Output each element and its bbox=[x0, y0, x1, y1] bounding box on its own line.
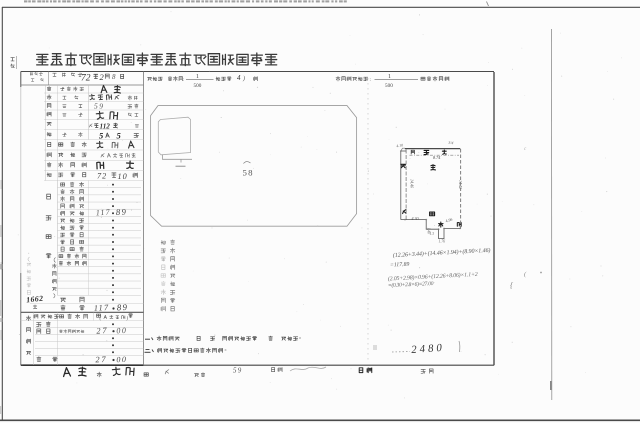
svg-text:500: 500 bbox=[194, 83, 202, 89]
svg-text:112: 112 bbox=[100, 122, 111, 130]
svg-text:72: 72 bbox=[81, 74, 91, 84]
svg-text:1.76: 1.76 bbox=[439, 240, 446, 244]
svg-text:4: 4 bbox=[237, 74, 241, 82]
svg-text:59: 59 bbox=[94, 101, 105, 110]
svg-text:4.96: 4.96 bbox=[445, 217, 453, 224]
svg-text:4.30: 4.30 bbox=[412, 216, 419, 221]
svg-text:00: 00 bbox=[116, 326, 127, 336]
svg-text:27: 27 bbox=[96, 326, 108, 336]
svg-text:=117.89: =117.89 bbox=[390, 262, 410, 269]
svg-text:14.46: 14.46 bbox=[410, 179, 415, 188]
svg-text:117: 117 bbox=[96, 207, 112, 217]
svg-text:): ) bbox=[242, 75, 245, 82]
svg-text:1: 1 bbox=[196, 74, 199, 80]
svg-text:5: 5 bbox=[99, 131, 104, 141]
svg-text:): ) bbox=[126, 317, 129, 322]
svg-text:117: 117 bbox=[94, 303, 110, 313]
svg-text:1.3: 1.3 bbox=[430, 232, 435, 236]
svg-text:°: ° bbox=[299, 338, 301, 343]
svg-text:8: 8 bbox=[112, 73, 116, 81]
svg-text:58: 58 bbox=[243, 168, 254, 178]
svg-text:1: 1 bbox=[388, 74, 391, 80]
svg-text:(12.26+3.44)+(14.46×1.94)+(8.9: (12.26+3.44)+(14.46×1.94)+(8.90×1.46) bbox=[393, 247, 491, 259]
svg-text:14.42: 14.42 bbox=[458, 180, 463, 189]
svg-text:27: 27 bbox=[95, 355, 107, 364]
svg-text:8.74: 8.74 bbox=[433, 155, 440, 160]
svg-text::: : bbox=[370, 78, 371, 83]
svg-text:1662: 1662 bbox=[26, 294, 44, 305]
svg-text:3/4: 3/4 bbox=[448, 140, 454, 146]
svg-text:c: c bbox=[524, 147, 527, 152]
svg-text::: : bbox=[183, 78, 184, 83]
svg-text:59: 59 bbox=[233, 367, 242, 375]
svg-text:°: ° bbox=[225, 350, 227, 355]
svg-text:00: 00 bbox=[116, 355, 127, 364]
svg-text:89: 89 bbox=[116, 206, 128, 217]
svg-text:(: ( bbox=[100, 317, 102, 322]
svg-text:(: ( bbox=[524, 271, 527, 278]
svg-text:2: 2 bbox=[100, 72, 105, 82]
svg-text:{: { bbox=[510, 281, 514, 290]
svg-text:4.10: 4.10 bbox=[396, 143, 403, 148]
svg-text:500: 500 bbox=[385, 83, 393, 89]
svg-text:89: 89 bbox=[117, 302, 129, 313]
svg-text:10: 10 bbox=[118, 172, 128, 181]
svg-text:72: 72 bbox=[97, 172, 107, 181]
svg-text:5: 5 bbox=[117, 131, 122, 141]
svg-text:2480: 2480 bbox=[411, 342, 445, 356]
